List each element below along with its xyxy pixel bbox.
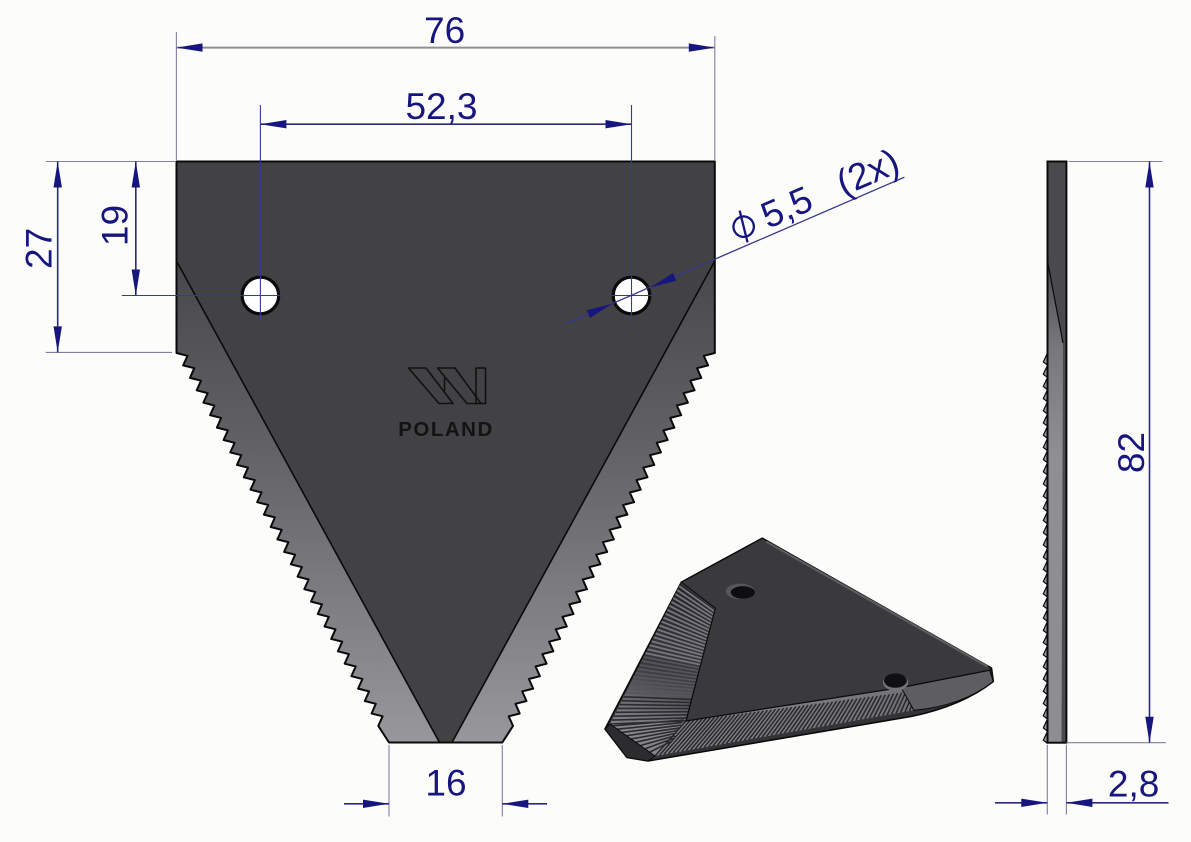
svg-text:76: 76	[424, 10, 465, 51]
svg-text:16: 16	[425, 763, 466, 804]
svg-text:POLAND: POLAND	[398, 418, 494, 441]
svg-text:82: 82	[1111, 432, 1152, 473]
svg-text:2,8: 2,8	[1108, 764, 1159, 805]
svg-text:27: 27	[18, 228, 59, 269]
svg-text:52,3: 52,3	[405, 86, 477, 127]
svg-text:19: 19	[95, 205, 136, 246]
